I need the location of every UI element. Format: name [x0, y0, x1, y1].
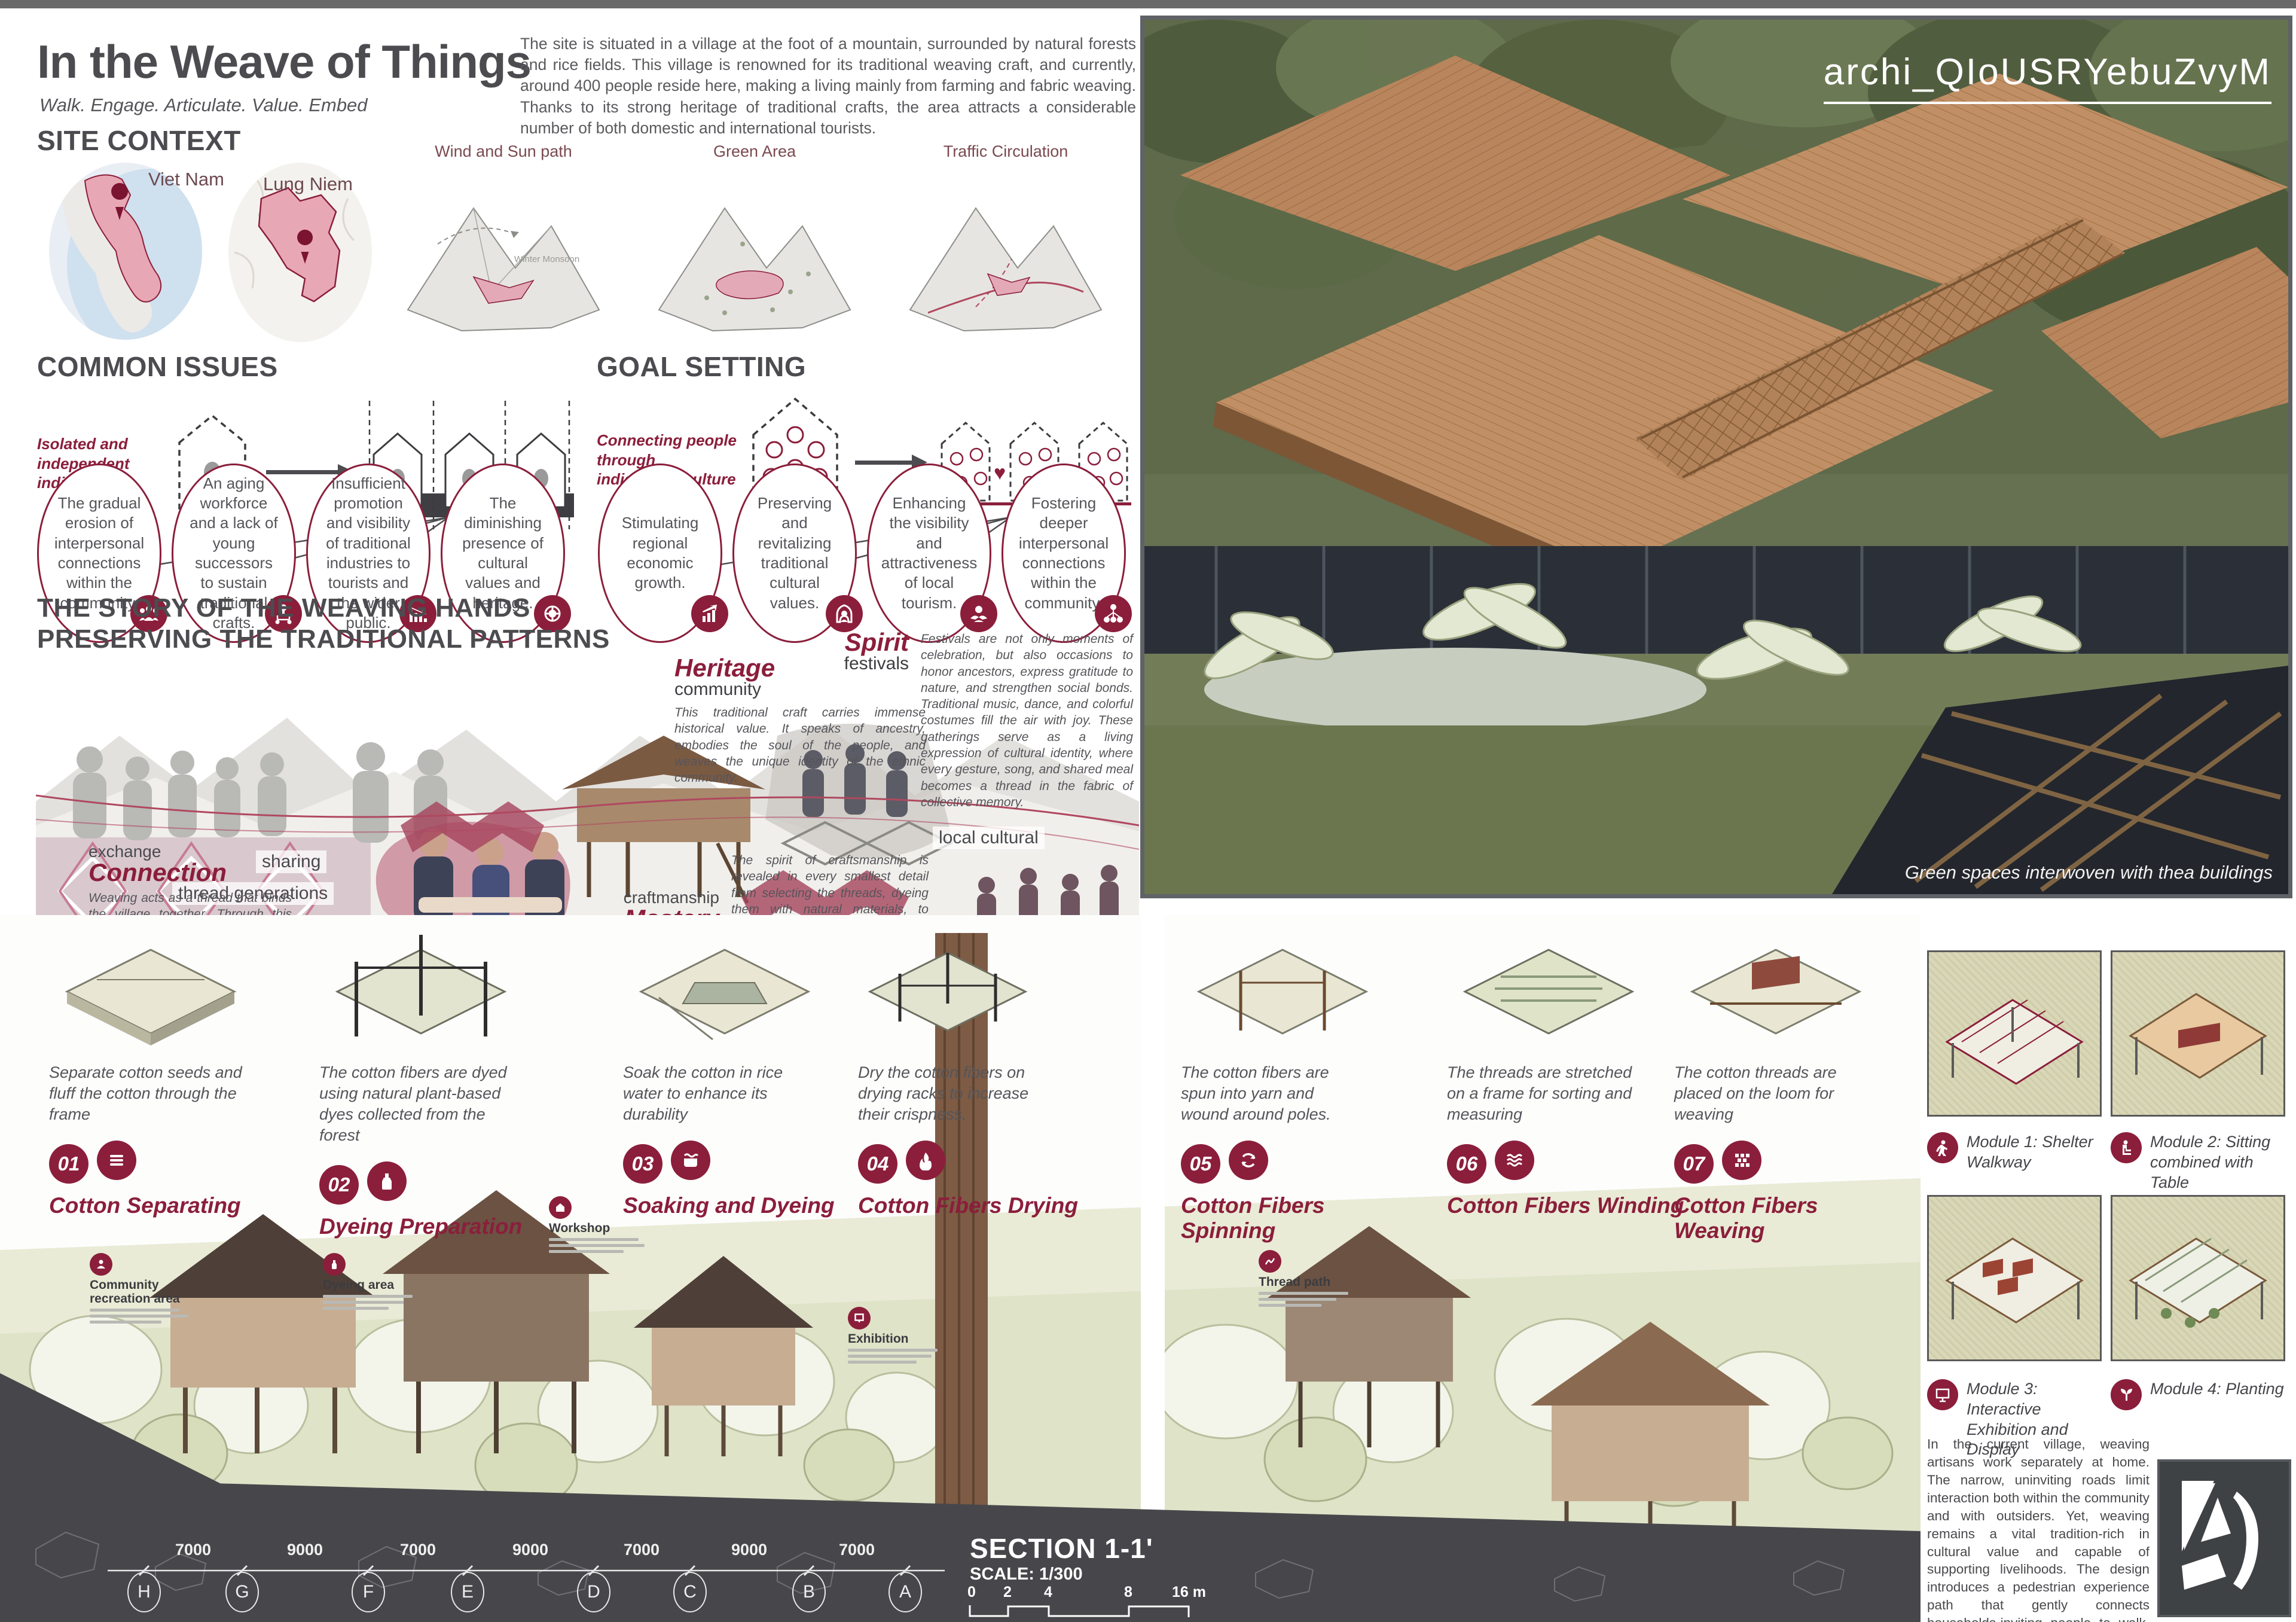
community-network-icon — [1095, 595, 1132, 632]
grid-bubble: G — [225, 1572, 259, 1612]
dim-label: 9000 — [287, 1541, 323, 1559]
dim-label: 7000 — [175, 1541, 211, 1559]
plant-icon — [2111, 1379, 2142, 1410]
map-lungniem-label: Lung Niem — [263, 173, 353, 195]
step-name: Cotton Fibers Drying — [858, 1193, 1097, 1218]
module-card-4 — [2111, 1195, 2285, 1361]
module-2-caption: Module 2: Sitting combined with Table — [2111, 1132, 2290, 1193]
heritage-kicker: Heritage — [674, 654, 775, 682]
grid-bubble: A — [889, 1572, 922, 1612]
spirit-kicker: Spirit — [845, 628, 909, 656]
annotation-label: Community recreation area — [90, 1278, 203, 1306]
dim-label: 7000 — [839, 1541, 875, 1559]
step-desc: The cotton fibers are spun into yarn and… — [1181, 1062, 1360, 1125]
render-caption: Green spaces interwoven with thea buildi… — [1905, 862, 2273, 883]
presentation-board: In the Weave of Things Walk. Engage. Art… — [0, 0, 2296, 1622]
a-logo — [2179, 1478, 2269, 1598]
grid-bubble: B — [792, 1572, 826, 1612]
process-step: The cotton threads are placed on the loo… — [1674, 926, 1913, 1243]
axon-drawing — [49, 926, 252, 1051]
module-1-caption: Module 1: Shelter Walkway — [1927, 1132, 2104, 1173]
module-card-2 — [2111, 950, 2285, 1117]
module-card-3 — [1927, 1195, 2102, 1361]
diagram-traffic-label: Traffic Circulation — [904, 142, 1107, 161]
fluff-lines-icon — [97, 1141, 136, 1180]
section-annotation: Community recreation area — [90, 1253, 203, 1324]
axon-drawing — [1674, 926, 1877, 1051]
step-number: 04 — [858, 1144, 897, 1184]
axon-drawing — [319, 926, 523, 1051]
scalebar-num: 4 — [1044, 1584, 1052, 1601]
axon-drawing — [1181, 926, 1384, 1051]
grid-bubble: C — [673, 1572, 707, 1612]
step-desc: Dry the cotton fibers on drying racks to… — [858, 1062, 1049, 1125]
wind-note: Winter Monsoon — [514, 254, 579, 264]
board-top-edge — [0, 0, 2296, 8]
common-issues-heading: COMMON ISSUES — [37, 350, 278, 383]
section-annotation: Exhibition — [848, 1307, 961, 1364]
intro-paragraph: The site is situated in a village at the… — [520, 33, 1136, 139]
step-desc: The cotton fibers are dyed using natural… — [319, 1062, 517, 1146]
dye-bottle-icon — [367, 1161, 407, 1201]
module-card-1 — [1927, 950, 2102, 1117]
section-annotation: Workshop — [549, 1196, 662, 1253]
section-annotation: Dyeing area — [323, 1253, 436, 1310]
woven-pattern-icon — [1722, 1141, 1761, 1180]
step-name: Cotton Fibers Spinning — [1181, 1193, 1420, 1243]
step-number: 03 — [623, 1144, 662, 1184]
heat-icon — [906, 1141, 945, 1180]
section-scale: SCALE: 1/300 — [970, 1565, 1083, 1584]
workshop-icon — [549, 1196, 572, 1219]
step-desc: Separate cotton seeds and fluff the cott… — [49, 1062, 246, 1125]
seated-person-icon — [2111, 1132, 2142, 1163]
step-desc: Soak the cotton in rice water to enhance… — [623, 1062, 802, 1125]
exhibition-annot-icon — [848, 1307, 871, 1330]
spinning-arrows-icon — [1229, 1141, 1268, 1180]
scale-bar: 0 2 4 8 16 m — [967, 1584, 1207, 1620]
step-name: Cotton Fibers Weaving — [1674, 1193, 1913, 1243]
tourism-hands-icon — [960, 595, 997, 632]
module-4-caption: Module 4: Planting — [2111, 1379, 2290, 1410]
dim-label: 9000 — [731, 1541, 767, 1559]
annotation-label: Dyeing area — [323, 1278, 436, 1292]
annotation-label: Thread path — [1259, 1275, 1372, 1289]
grid-bubble: D — [577, 1572, 610, 1612]
svg-text:♥: ♥ — [994, 462, 1006, 484]
dim-label: 7000 — [624, 1541, 660, 1559]
scalebar-num: 2 — [1003, 1584, 1012, 1601]
process-step: The cotton fibers are dyed using natural… — [319, 926, 570, 1239]
scalebar-num: 0 — [967, 1584, 976, 1601]
connection-label: Connection — [88, 858, 227, 886]
step-name: Dyeing Preparation — [319, 1214, 570, 1239]
growth-chart-icon — [691, 595, 728, 632]
step-desc: The threads are stretched on a frame for… — [1447, 1062, 1644, 1125]
terrain-diagram-green — [653, 172, 856, 340]
soaking-basin-icon — [671, 1141, 710, 1180]
step-name: Cotton Fibers Winding — [1447, 1193, 1686, 1218]
axon-drawing — [858, 926, 1037, 1051]
annotation-label: Exhibition — [848, 1332, 961, 1346]
diagram-green-area-label: Green Area — [653, 142, 856, 161]
section-title: SECTION 1-1' — [970, 1532, 1153, 1565]
process-step: Soak the cotton in rice water to enhance… — [623, 926, 862, 1218]
step-number: 07 — [1674, 1144, 1714, 1184]
step-number: 05 — [1181, 1144, 1220, 1184]
goal-text: Stimulating regional economic growth. — [615, 513, 705, 593]
process-step: Separate cotton seeds and fluff the cott… — [49, 926, 288, 1218]
annotation-label: Workshop — [549, 1221, 662, 1235]
module-label: Module 1: Shelter Walkway — [1967, 1132, 2104, 1173]
scalebar-num: 16 m — [1172, 1584, 1206, 1601]
exhibition-icon — [1927, 1379, 1958, 1410]
logo-box — [2157, 1459, 2291, 1617]
cultural-person-icon — [826, 595, 863, 632]
heritage-label: community — [674, 679, 761, 699]
process-step: The cotton fibers are spun into yarn and… — [1181, 926, 1420, 1243]
thread-path-icon — [1259, 1250, 1281, 1273]
process-step: Dry the cotton fibers on drying racks to… — [858, 926, 1097, 1218]
render-panel: archi_QIoUSRYebuZvyM Green spaces interw… — [1140, 16, 2292, 898]
page-title: In the Weave of Things — [37, 35, 531, 89]
dim-label: 9000 — [512, 1541, 548, 1559]
step-desc: The cotton threads are placed on the loo… — [1674, 1062, 1871, 1125]
closing-paragraph: In the current village, weaving artisans… — [1927, 1435, 2150, 1622]
step-number: 06 — [1447, 1144, 1486, 1184]
dyeing-icon — [323, 1253, 346, 1276]
grid-bubble: E — [451, 1572, 484, 1612]
walking-person-icon — [1927, 1132, 1958, 1163]
grid-bubble: F — [352, 1572, 385, 1612]
project-code: archi_QIoUSRYebuZvyM — [1824, 51, 2271, 104]
terrain-diagram-traffic — [904, 172, 1107, 340]
page-subtitle: Walk. Engage. Articulate. Value. Embed — [39, 94, 368, 116]
goal-text: Enhancing the visibility and attractiven… — [881, 493, 977, 613]
goal-text: Preserving and revitalizing traditional … — [750, 493, 839, 613]
section-annotation: Thread path — [1259, 1250, 1372, 1307]
axon-drawing — [623, 926, 826, 1051]
scalebar-num: 8 — [1124, 1584, 1132, 1601]
story-spirit-block: Spirit festivals Festivals are not only … — [834, 631, 1136, 810]
step-number: 02 — [319, 1165, 359, 1205]
diagram-wind-sun-label: Wind and Sun path — [402, 142, 605, 161]
grid-bubble: H — [127, 1572, 161, 1612]
story-tag-local-cultural: local cultural — [933, 827, 1045, 849]
story-tag-sharing: sharing — [256, 850, 326, 873]
community-icon — [90, 1253, 112, 1276]
site-context-heading: SITE CONTEXT — [37, 124, 241, 157]
map-vietnam-label: Viet Nam — [148, 169, 224, 190]
spirit-text: Festivals are not only moments of celebr… — [921, 631, 1133, 810]
threads-waves-icon — [1495, 1141, 1534, 1180]
dim-label: 7000 — [400, 1541, 436, 1559]
axon-drawing — [1447, 926, 1650, 1051]
process-step: The threads are stretched on a frame for… — [1447, 926, 1686, 1218]
module-label: Module 4: Planting — [2150, 1379, 2284, 1400]
module-label: Module 2: Sitting combined with Table — [2150, 1132, 2290, 1193]
story-heading-line1: THE STORY OF THE WEAVING HANDS — [37, 593, 530, 623]
goal-text: Fostering deeper interpersonal connectio… — [1019, 493, 1109, 613]
step-name: Cotton Separating — [49, 1193, 288, 1218]
step-number: 01 — [49, 1144, 88, 1184]
spirit-label: festivals — [844, 654, 909, 673]
